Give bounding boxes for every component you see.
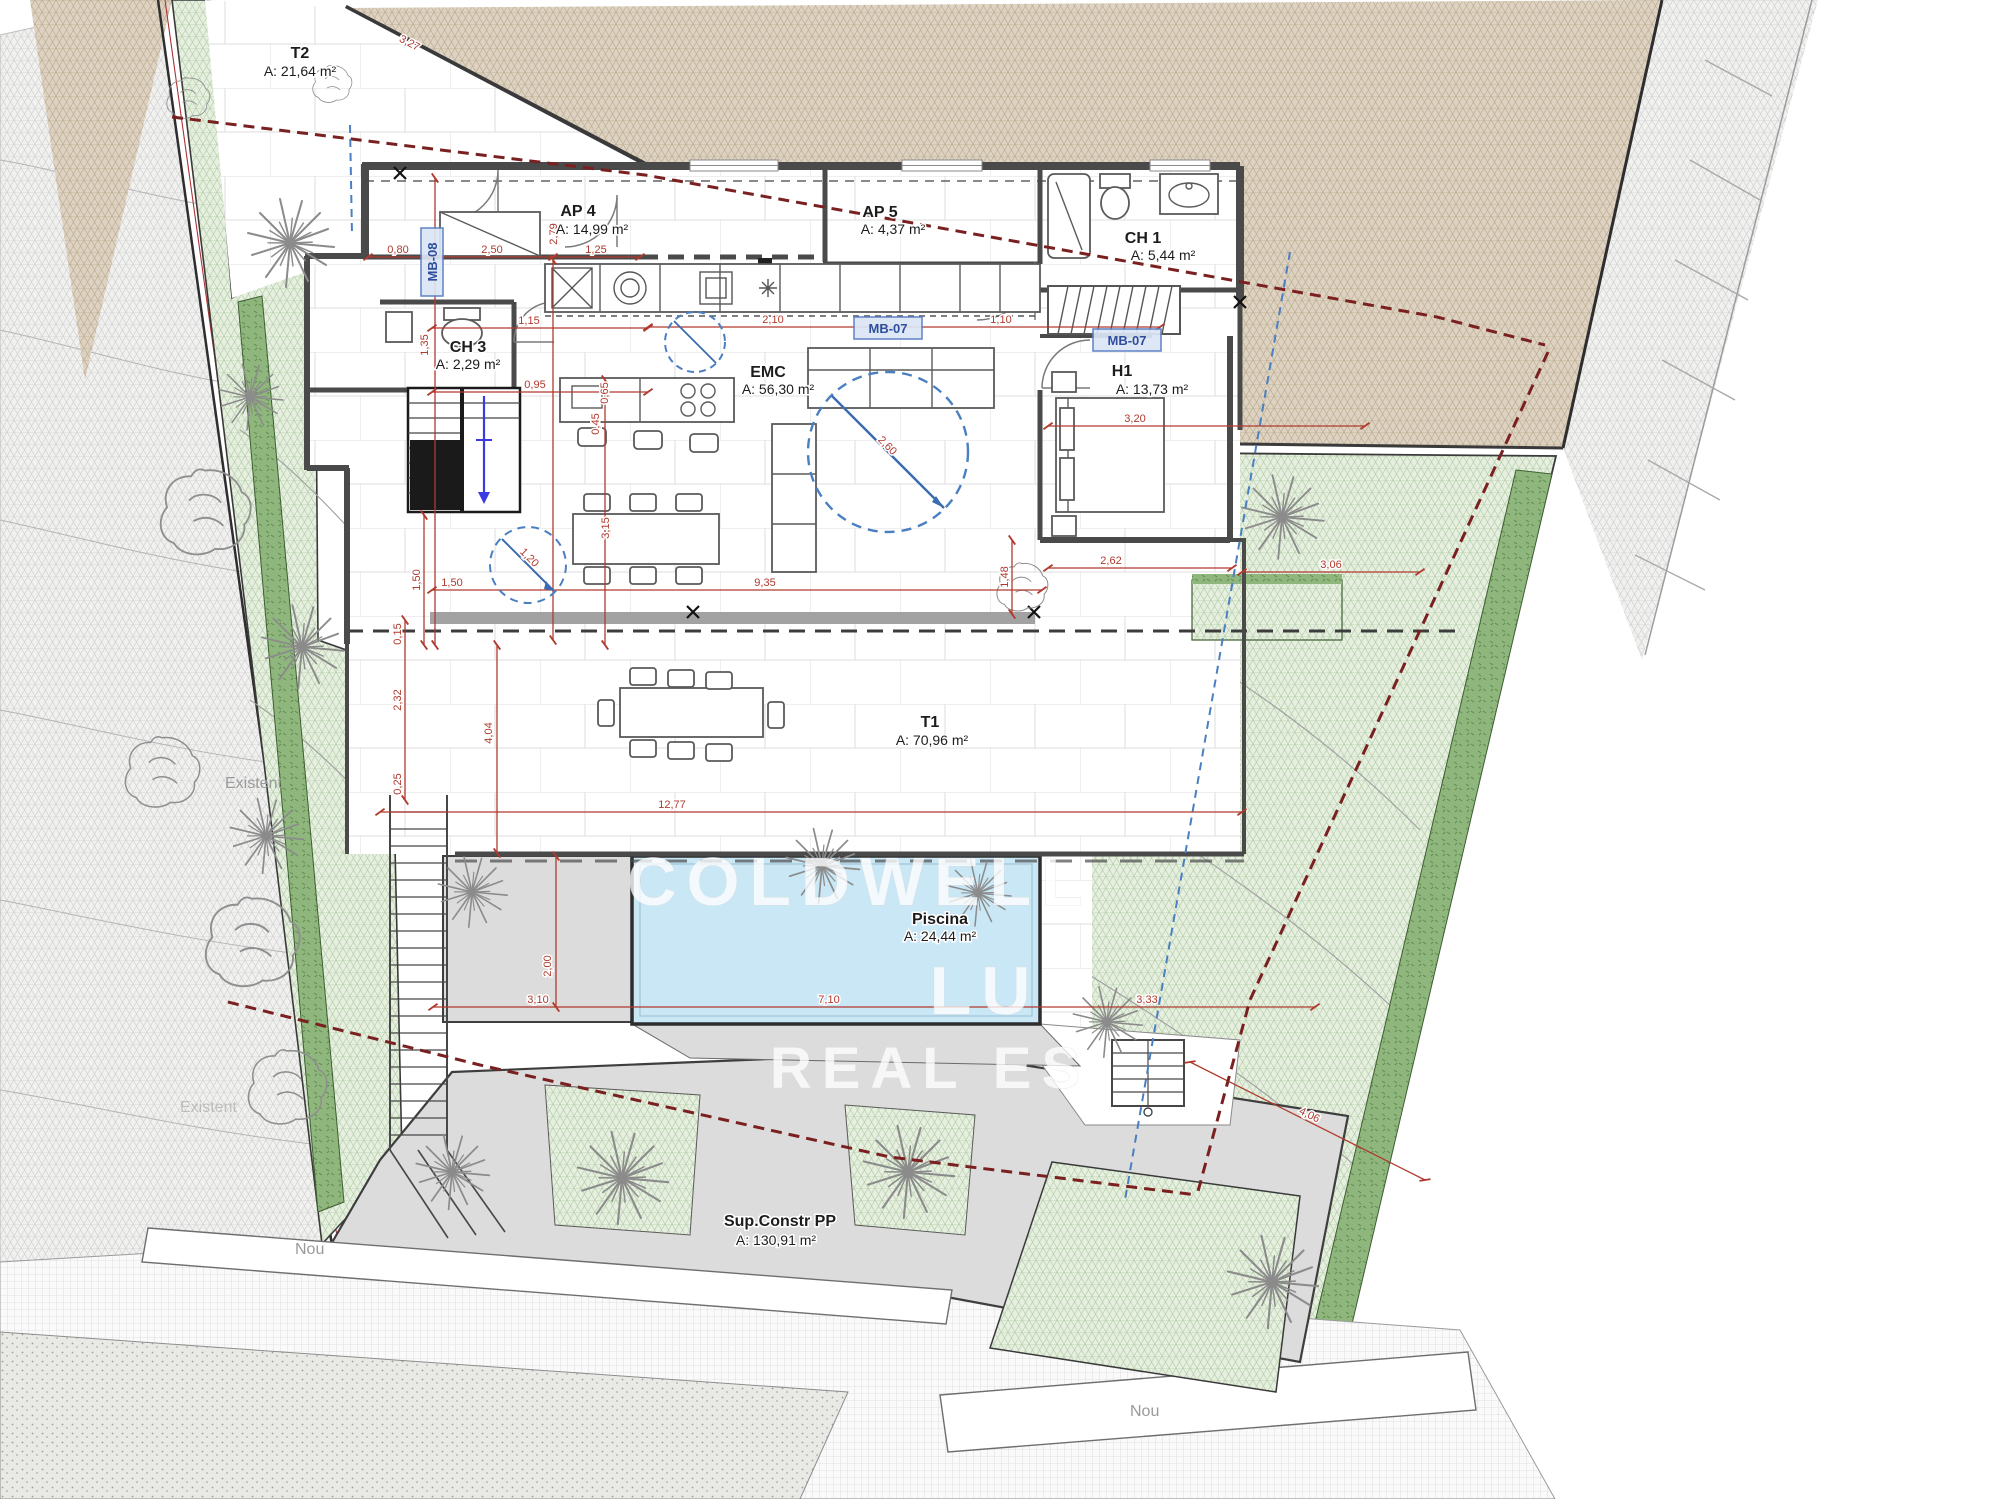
dim-label: 1,10 — [990, 314, 1011, 326]
room-name: CH 3 — [450, 339, 487, 356]
dim-label: 1,25 — [585, 244, 606, 256]
dim-label: 0,65 — [599, 382, 611, 403]
dim-label: 1,35 — [419, 334, 431, 355]
dim-label: 9,35 — [754, 577, 775, 589]
room-name: CH 1 — [1125, 230, 1162, 247]
room-area: A: 13,73 m² — [1116, 381, 1189, 397]
dim-label: 3,20 — [1124, 413, 1145, 425]
dim-label: 2,50 — [481, 244, 502, 256]
dim-label: 1,50 — [411, 569, 423, 590]
dim-label: 3,15 — [600, 517, 612, 538]
planter-east-hedge — [1192, 574, 1342, 584]
room-area: A: 24,44 m² — [904, 928, 977, 944]
room-name: H1 — [1112, 363, 1133, 380]
room-name: AP 5 — [862, 204, 897, 221]
kitchen-island — [560, 378, 734, 452]
tag-label: MB-07 — [1107, 333, 1146, 348]
dining-table-indoor — [573, 494, 719, 584]
room-name: AP 4 — [560, 203, 595, 220]
label-existent-2: Existent — [180, 1099, 237, 1116]
dim-label: 0,45 — [590, 413, 602, 434]
dim-label: 4,04 — [483, 722, 495, 743]
interior-stairs-icon — [408, 388, 520, 512]
room-area: A: 21,64 m² — [264, 63, 337, 79]
room-area: A: 70,96 m² — [896, 732, 969, 748]
room-area: A: 4,37 m² — [861, 221, 926, 237]
watermark-line3: REAL ES — [770, 1036, 1090, 1101]
dim-label: 7,10 — [818, 994, 839, 1006]
dim-label: 3,10 — [527, 994, 548, 1006]
dim-label: 0,95 — [524, 379, 545, 391]
site-plan: 3,27 0,80 2,50 1,25 1,15 0,95 0,65 0,45 … — [0, 0, 2000, 1499]
tag-mb08: MB-08 — [421, 228, 443, 296]
glass-wall — [430, 612, 1035, 624]
room-name: T1 — [921, 714, 940, 731]
tag-mb07-a: MB-07 — [854, 317, 922, 339]
room-area: A: 14,99 m² — [556, 221, 629, 237]
tag-label: MB-07 — [868, 321, 907, 336]
dim-label: 1,15 — [518, 315, 539, 327]
room-name: Sup.Constr PP — [724, 1213, 836, 1230]
label-nou-west: Nou — [295, 1241, 324, 1258]
tag-mb07-b: MB-07 — [1093, 329, 1161, 351]
garden-patch-bottom-1 — [545, 1085, 700, 1235]
dim-label: 0,25 — [392, 773, 404, 794]
pool-stairs-icon — [1112, 1040, 1184, 1116]
room-area: A: 130,91 m² — [736, 1232, 816, 1248]
dim-label: 12,77 — [658, 799, 686, 811]
watermark-line2: LU — [930, 953, 1041, 1029]
label-existent: Existent — [225, 775, 282, 792]
dim-label: 0,80 — [387, 244, 408, 256]
room-name: EMC — [750, 364, 786, 381]
dim-label: 2,62 — [1100, 555, 1121, 567]
room-name: T2 — [291, 45, 310, 62]
dim-label: 2,10 — [762, 314, 783, 326]
room-area: A: 2,29 m² — [436, 356, 501, 372]
dim-label: 1,50 — [441, 577, 462, 589]
watermark-line1: COLDWELL — [627, 844, 1092, 920]
dim-label: 0,15 — [392, 623, 404, 644]
kitchen-counter — [545, 264, 1040, 312]
dim-label: 1,48 — [999, 566, 1011, 587]
dim-label: 3,33 — [1136, 994, 1157, 1006]
room-area: A: 5,44 m² — [1131, 247, 1196, 263]
dim-label: 2,32 — [392, 689, 404, 710]
room-area: A: 56,30 m² — [742, 381, 815, 397]
tag-label: MB-08 — [425, 242, 440, 281]
dim-label: 3,06 — [1320, 559, 1341, 571]
label-nou-south: Nou — [1130, 1403, 1159, 1420]
dim-label: 2,00 — [542, 955, 554, 976]
